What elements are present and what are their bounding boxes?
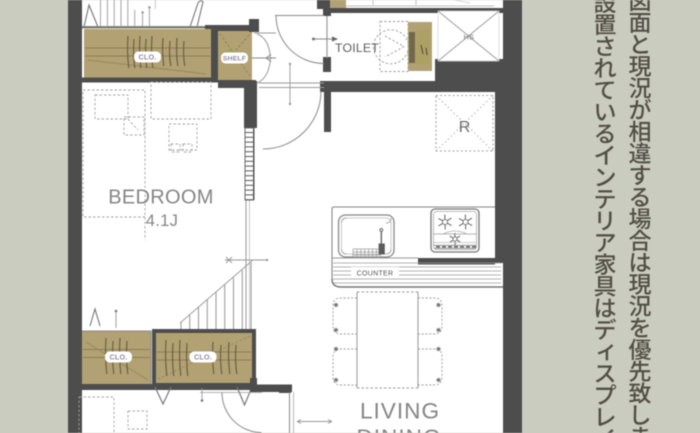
svg-text:CLO.: CLO.: [110, 352, 128, 361]
svg-text:LIVING: LIVING: [360, 398, 440, 423]
svg-text:BEDROOM: BEDROOM: [108, 186, 213, 208]
svg-text:HS: HS: [464, 33, 475, 42]
svg-text:R: R: [459, 119, 471, 136]
svg-text:CLO.: CLO.: [139, 52, 157, 61]
svg-text:SHELF: SHELF: [223, 55, 246, 62]
svg-text:4.1J: 4.1J: [146, 212, 178, 230]
svg-text:TOILET: TOILET: [335, 41, 379, 55]
svg-text:COUNTER: COUNTER: [357, 271, 394, 278]
svg-text:DINING: DINING: [356, 425, 441, 433]
svg-text:CLO.: CLO.: [194, 352, 212, 361]
